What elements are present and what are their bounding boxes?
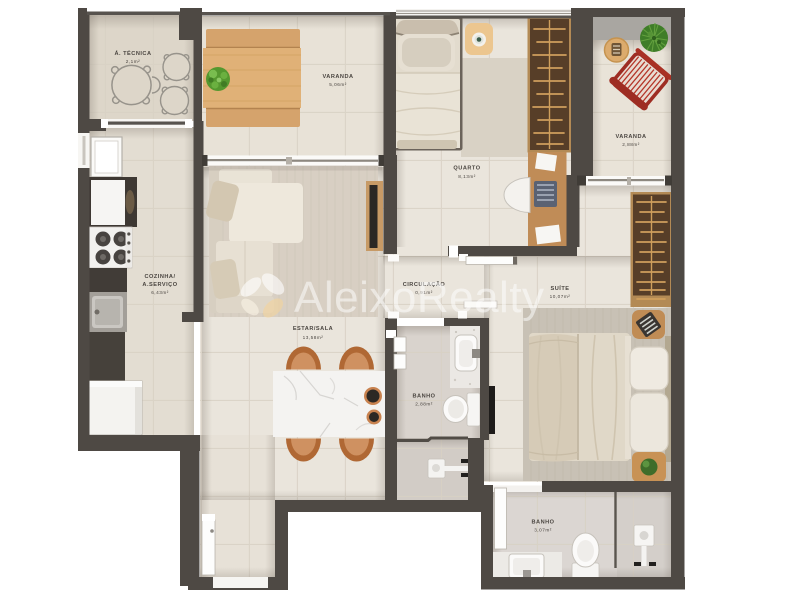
svg-text:Á. TÉCNICA: Á. TÉCNICA [114,49,151,57]
svg-text:2,88m²: 2,88m² [622,142,640,147]
svg-text:3,07m²: 3,07m² [534,528,552,533]
svg-text:2,1m²: 2,1m² [126,59,140,64]
svg-text:COZINHA/: COZINHA/ [144,274,175,280]
svg-text:2,88m²: 2,88m² [415,402,433,407]
svg-text:SUÍTE: SUÍTE [551,284,570,292]
svg-text:VARANDA: VARANDA [615,134,646,140]
svg-text:QUARTO: QUARTO [453,166,480,172]
svg-text:AleixoRealty: AleixoRealty [294,273,545,322]
svg-text:10,07m²: 10,07m² [550,294,571,299]
svg-text:BANHO: BANHO [531,520,554,526]
svg-text:13,58m²: 13,58m² [303,335,324,340]
svg-text:A.SERVIÇO: A.SERVIÇO [142,282,177,288]
svg-text:VARANDA: VARANDA [322,74,353,80]
svg-text:5,06m²: 5,06m² [329,82,347,87]
svg-text:8,13m²: 8,13m² [458,174,476,179]
svg-text:6,43m²: 6,43m² [151,290,169,295]
svg-text:ESTAR/SALA: ESTAR/SALA [293,326,333,332]
svg-text:BANHO: BANHO [412,394,435,400]
